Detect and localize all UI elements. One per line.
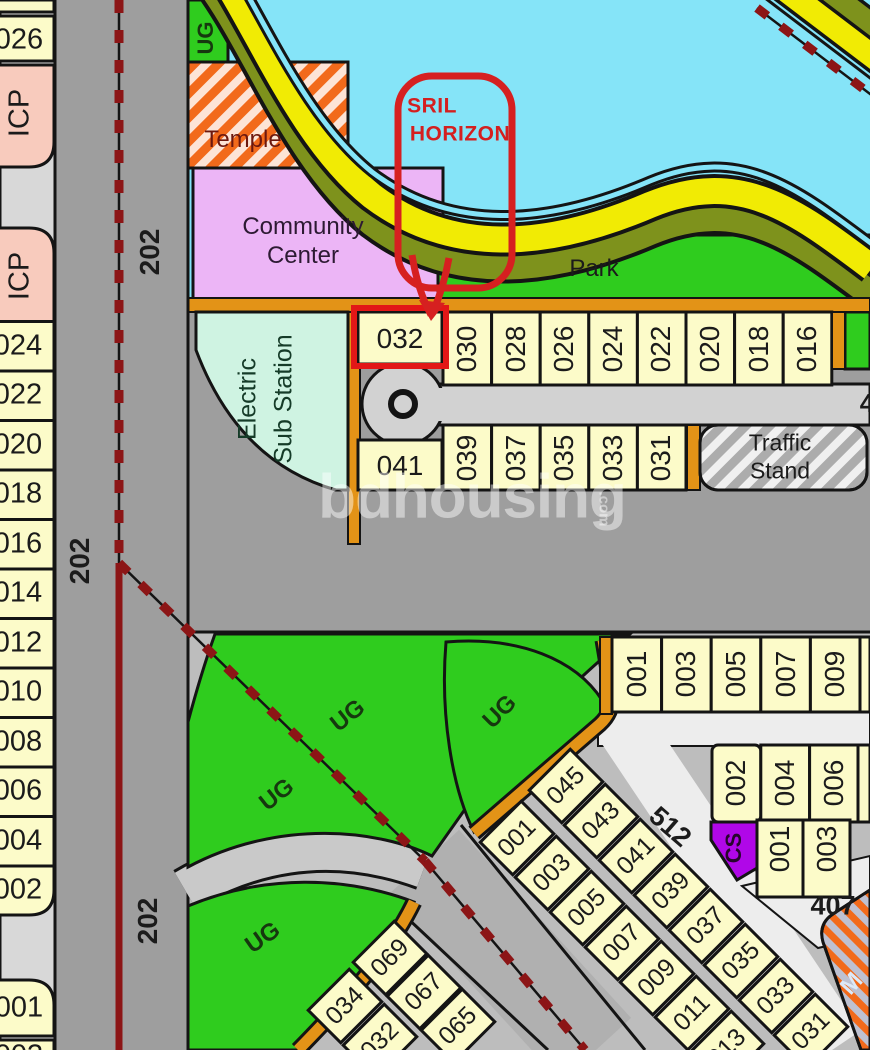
substation-label: Electric: [236, 358, 261, 440]
watermark-tld: .com: [596, 491, 613, 526]
plot-label: 016: [0, 530, 42, 559]
plot-label: 031: [647, 435, 675, 482]
plot-label: 002: [722, 760, 750, 807]
plot-label: 030: [453, 326, 481, 373]
plot-label: 001: [623, 651, 651, 698]
plot-label: 007: [772, 651, 800, 698]
plot-map: 026 ICP ICP 024 022 020 018 016 014 012 …: [0, 0, 870, 1050]
plot-label: 014: [0, 579, 42, 608]
plot-label: 018: [745, 326, 773, 373]
community-center-label: Community: [242, 215, 363, 239]
green-right-patch: [845, 312, 870, 369]
plot-label: 024: [0, 332, 42, 361]
plot-label: 003: [672, 651, 700, 698]
plot-label-partial: 003: [0, 1042, 43, 1050]
roundabout-island: [391, 392, 415, 416]
road-202-label: 202: [66, 538, 94, 585]
plot-label: 010: [0, 678, 42, 707]
road-202-label: 202: [136, 229, 164, 276]
orange-strip-col: [600, 637, 612, 714]
plot-label: 002: [0, 876, 42, 905]
plot-label: 006: [820, 760, 848, 807]
annotation-text: SRIL: [407, 96, 457, 117]
plot-label-icp: ICP: [6, 252, 35, 300]
park-label: Park: [569, 257, 618, 281]
plot-label: 008: [0, 728, 42, 757]
annotation-text: HORIZON: [410, 124, 510, 145]
ug-label: UG: [195, 22, 217, 55]
plot-label: 003: [813, 826, 841, 873]
plot-label: 018: [0, 480, 42, 509]
plot-label: 022: [0, 381, 42, 410]
orange-strip-horizontal: [188, 298, 870, 312]
plot-label: 020: [0, 431, 42, 460]
plot-label: 009: [821, 651, 849, 698]
temple-label: Temple: [204, 128, 281, 152]
watermark: bdhousing: [318, 462, 626, 533]
plot-label-icp: ICP: [6, 89, 35, 137]
plot-label: 022: [647, 326, 675, 373]
cs-plot-label: CS: [723, 833, 745, 864]
plot-label: 005: [722, 651, 750, 698]
traffic-stand-label: Traffic: [749, 432, 812, 455]
plot-label: 004: [0, 827, 42, 856]
plot-label: 026: [550, 326, 578, 373]
plot-label: 004: [771, 760, 799, 807]
community-center-label: Center: [267, 244, 339, 268]
road-label-partial: 4: [860, 390, 870, 416]
plot-label: 001: [766, 826, 794, 873]
plot-label: 020: [696, 326, 724, 373]
plot-label-highlighted: 032: [377, 325, 424, 353]
plot-label: 016: [793, 326, 821, 373]
road-407-label: 407: [810, 893, 855, 920]
traffic-stand-label: Stand: [750, 460, 810, 483]
substation-label: Sub Station: [272, 334, 297, 463]
plot-label: 026: [0, 26, 43, 55]
road-202-label: 202: [134, 898, 162, 945]
plot-label: 024: [599, 326, 627, 373]
plot-label: 028: [502, 326, 530, 373]
plot-label: 006: [0, 777, 42, 806]
plot-label: 012: [0, 629, 42, 658]
plot-label: 001: [0, 994, 43, 1023]
